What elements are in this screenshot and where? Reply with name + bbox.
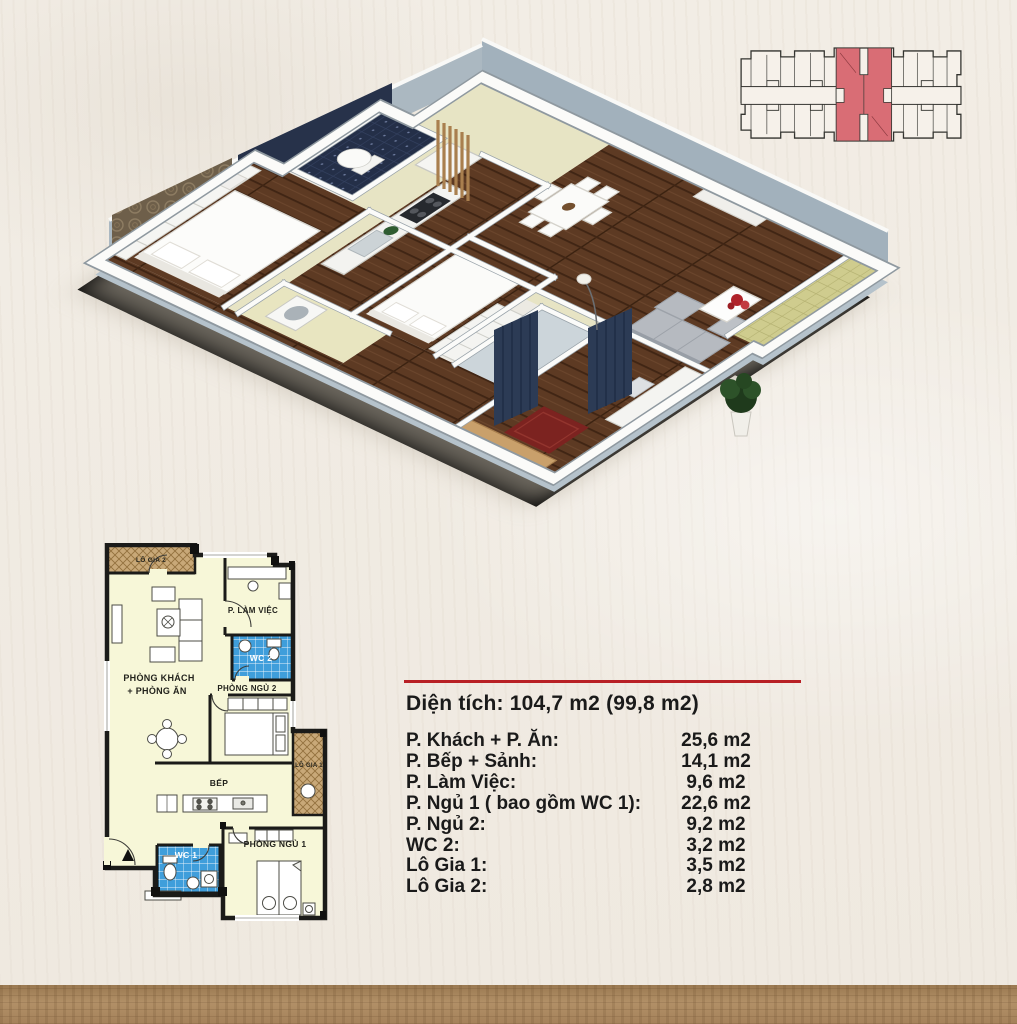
label-living-2: + PHÒNG ĂN — [127, 685, 186, 696]
label-balcony2: LÔ GIA 2 — [136, 555, 166, 564]
area-row: P. Bếp + Sảnh:14,1 m2 — [406, 752, 778, 773]
label-balcony1: LÔ GIA 1 — [295, 761, 323, 769]
potted-plant — [720, 373, 761, 436]
label-bedroom1: PHÒNG NGỦ 1 — [244, 838, 307, 849]
label-living-1: PHÒNG KHÁCH — [123, 672, 194, 683]
area-row: P. Làm Việc:9,6 m2 — [406, 773, 778, 794]
building-key-plan — [737, 45, 965, 144]
area-rows: P. Khách + P. Ăn:25,6 m2 P. Bếp + Sảnh:1… — [406, 731, 778, 898]
label-workroom: P. LÀM VIỆC — [228, 606, 278, 615]
area-row: WC 2:3,2 m2 — [406, 836, 778, 857]
area-row: P. Khách + P. Ăn:25,6 m2 — [406, 731, 778, 752]
red-divider-line — [404, 680, 801, 683]
area-row: Lô Gia 2:2,8 m2 — [406, 877, 778, 898]
area-row: P. Ngủ 2:9,2 m2 — [406, 815, 778, 836]
balcony1-2d — [293, 731, 325, 815]
floor-plan-2d: LÔ GIA 2 P. LÀM VIỆC WC 2 PHÒNG KHÁCH + … — [95, 543, 337, 925]
wood-table-edge — [0, 985, 1017, 1024]
area-row: P. Ngủ 1 ( bao gồm WC 1):22,6 m2 — [406, 794, 778, 815]
area-summary-panel: Diện tích: 104,7 m2 (99,8 m2) P. Khách +… — [406, 692, 778, 898]
label-wc2: WC 2 — [250, 653, 272, 663]
area-title: Diện tích: 104,7 m2 (99,8 m2) — [406, 692, 778, 716]
label-bedroom2: PHÒNG NGỦ 2 — [217, 684, 277, 693]
label-kitchen: BẾP — [210, 778, 228, 788]
area-row: Lô Gia 1:3,5 m2 — [406, 856, 778, 877]
label-wc1: WC 1 — [175, 850, 197, 860]
